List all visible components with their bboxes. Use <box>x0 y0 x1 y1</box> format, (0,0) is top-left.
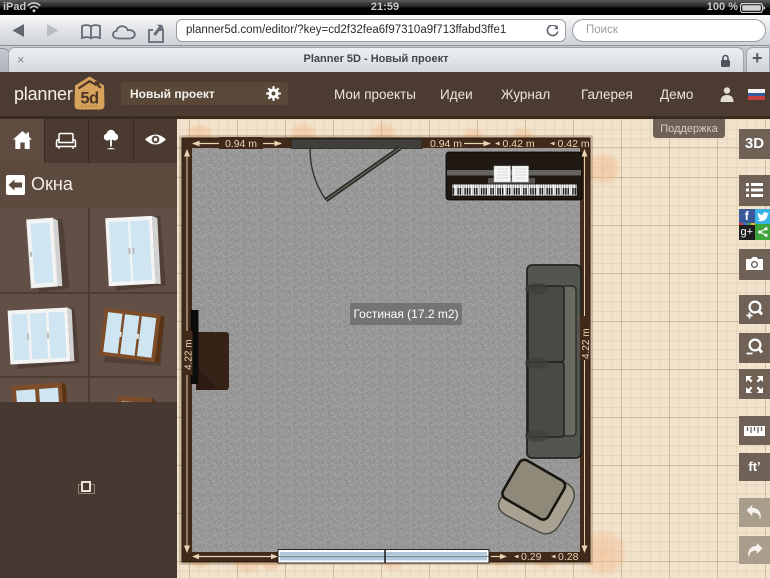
svg-text:Гостиная (17.2 m2): Гостиная (17.2 m2) <box>353 307 458 321</box>
svg-text:0.94 m: 0.94 m <box>225 138 257 150</box>
svg-text:0.29: 0.29 <box>521 551 542 563</box>
svg-text:4.22 m: 4.22 m <box>581 328 592 359</box>
svg-text:0.94 m: 0.94 m <box>430 138 462 150</box>
svg-text:0.28: 0.28 <box>558 551 579 563</box>
svg-text:4.22 m: 4.22 m <box>184 339 195 370</box>
svg-text:0.42 m: 0.42 m <box>503 138 535 150</box>
svg-text:0.42 m: 0.42 m <box>558 138 590 150</box>
svg-text:5d: 5d <box>80 90 98 108</box>
